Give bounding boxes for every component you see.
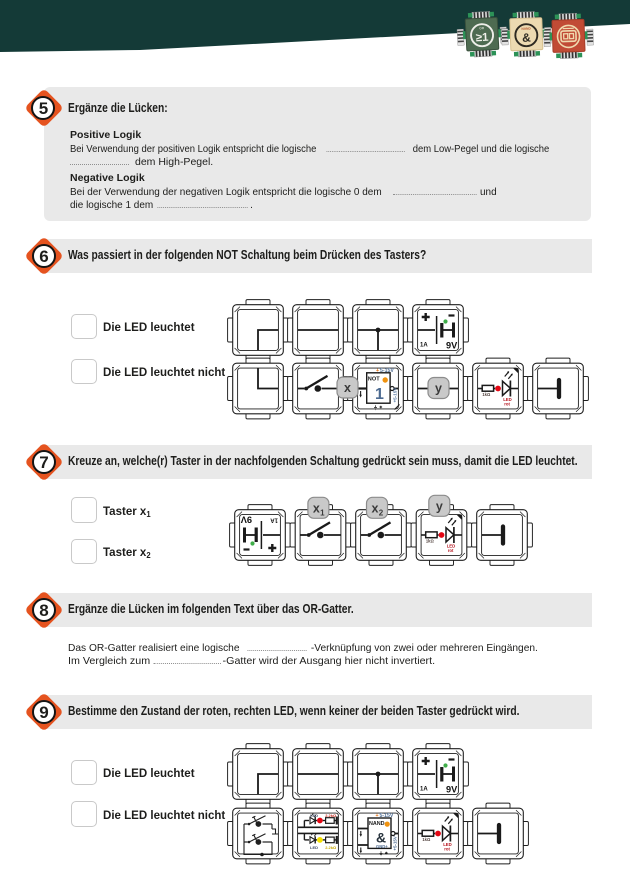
svg-text:&: &: [522, 31, 531, 45]
svg-text:x: x: [372, 501, 379, 515]
svg-text:1: 1: [320, 508, 325, 517]
svg-text:x: x: [313, 501, 320, 515]
svg-text:y: y: [435, 382, 442, 396]
svg-text:y: y: [436, 499, 443, 513]
svg-text:2: 2: [379, 508, 384, 517]
svg-text:x: x: [344, 381, 351, 395]
svg-text:≥1: ≥1: [476, 32, 490, 45]
